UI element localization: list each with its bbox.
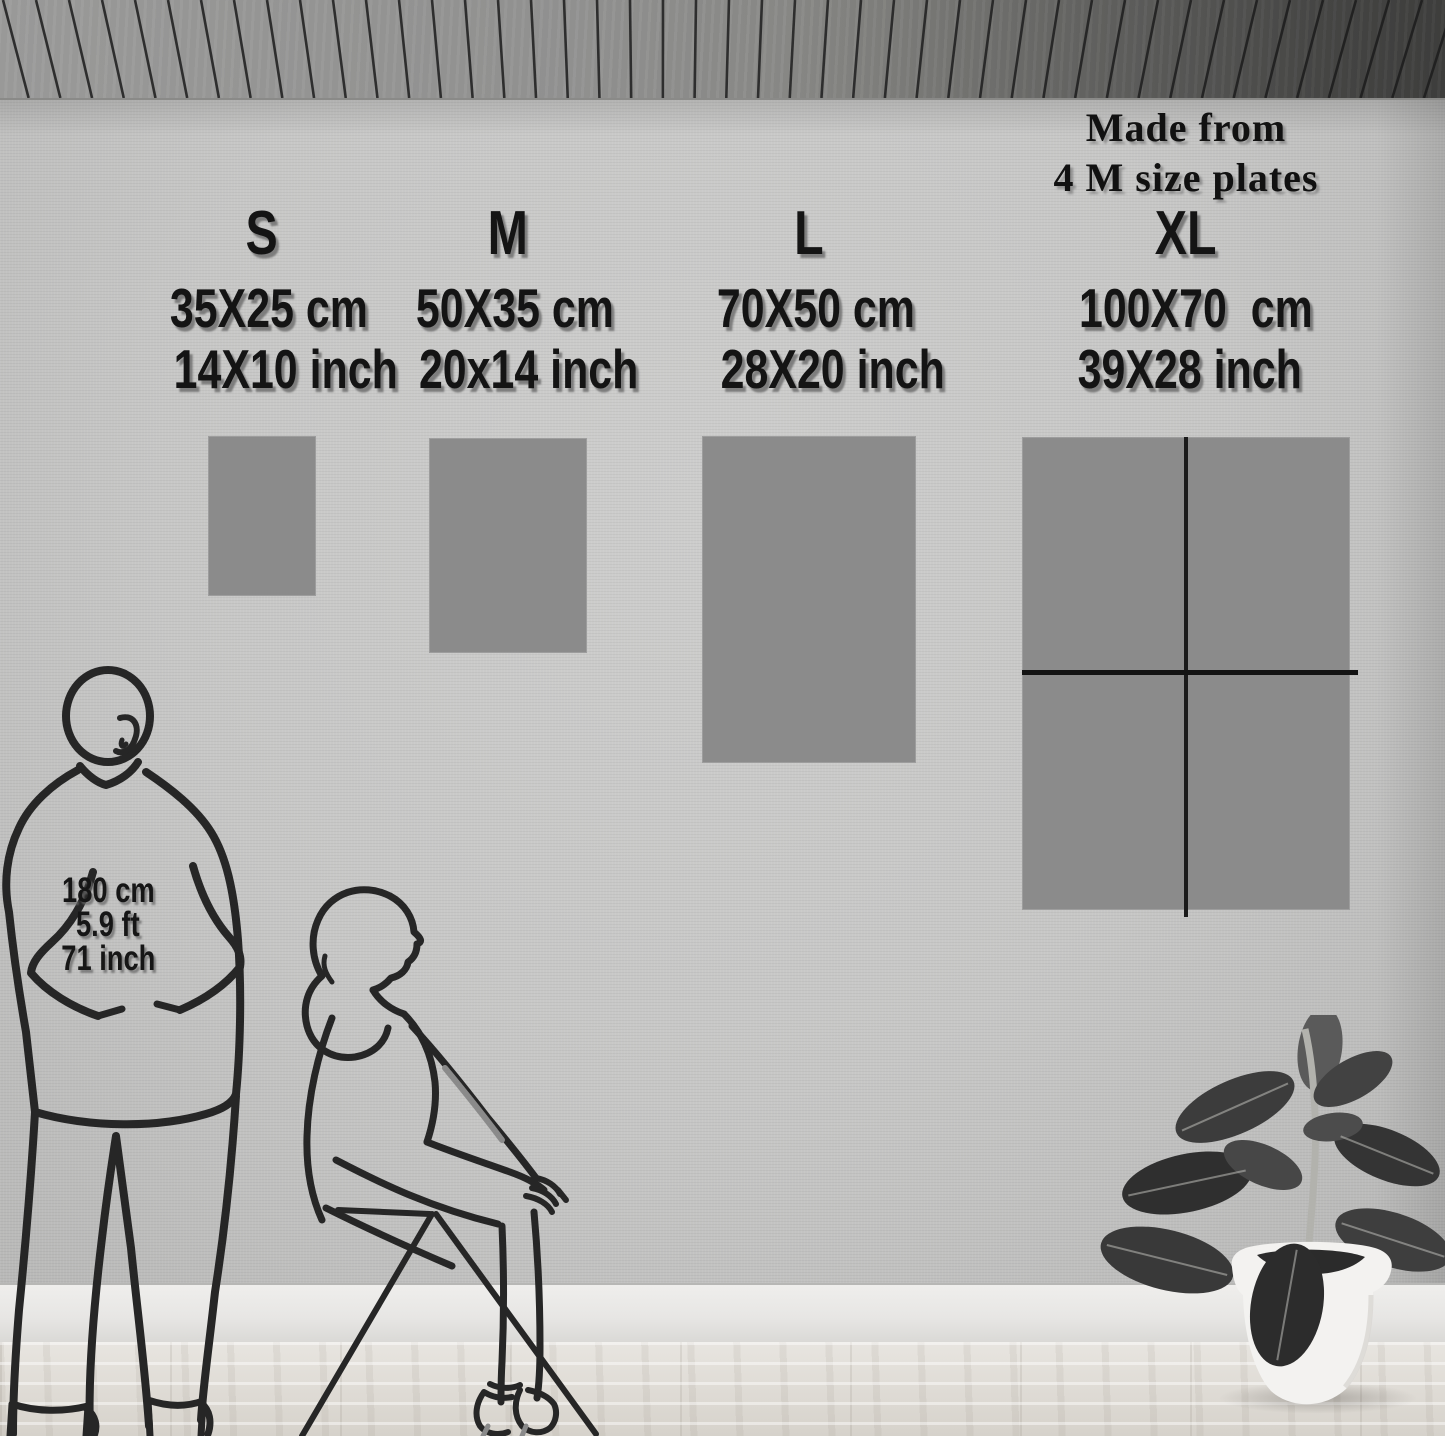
height-ft: 5.9 ft xyxy=(76,908,140,942)
size-guide-infographic: Made from 4 M size plates S 35X25 cm 14X… xyxy=(0,0,1445,1436)
woman-ear xyxy=(324,956,332,982)
man-left-shoe xyxy=(10,1404,96,1436)
woman-shin-near xyxy=(501,1226,504,1402)
woman-face-profile xyxy=(373,896,421,990)
woman-hair xyxy=(305,890,390,1058)
height-inch: 71 inch xyxy=(61,942,155,976)
size-plate-l xyxy=(702,436,916,763)
woman-ankle xyxy=(490,1384,520,1388)
standing-man-figure xyxy=(0,660,300,1436)
man-left-leg-outer xyxy=(13,1112,35,1434)
height-cm: 180 cm xyxy=(62,874,155,908)
size-plate-s xyxy=(208,436,316,596)
size-column-m: M 50X35 cm 20x14 inch xyxy=(388,203,628,397)
man-ear-curl xyxy=(121,740,126,746)
size-label-l: L xyxy=(794,203,824,265)
xl-note-line-1: Made from xyxy=(976,108,1396,148)
xl-plate-vertical-divider xyxy=(1184,437,1188,917)
reference-height-label: 180 cm 5.9 ft 71 inch xyxy=(8,874,208,976)
size-plate-m xyxy=(429,438,587,653)
size-label-m: M xyxy=(488,203,528,265)
xl-plate-horizontal-divider xyxy=(1022,670,1358,675)
size-column-xl: XL 100X70 cm 39X28 inch xyxy=(1046,203,1326,397)
man-head xyxy=(66,670,150,762)
size-inch-xl: 39X28 inch xyxy=(1078,342,1302,397)
man-right-hand xyxy=(157,1004,180,1010)
size-cm-xl: 100X70 cm xyxy=(1079,281,1313,336)
size-cm-m: 50X35 cm xyxy=(416,281,614,336)
ceiling-shadow xyxy=(0,0,1445,98)
size-inch-m: 20x14 inch xyxy=(419,342,638,397)
potted-plant xyxy=(1095,1015,1445,1436)
size-label-xl: XL xyxy=(1155,203,1217,265)
size-cm-l: 70X50 cm xyxy=(717,281,915,336)
woman-heel-shoe-near xyxy=(477,1392,512,1434)
size-column-l: L 70X50 cm 28X20 inch xyxy=(689,203,929,397)
man-legs-inner xyxy=(90,1136,149,1432)
woman-neck-front xyxy=(373,990,404,1014)
man-right-shoe xyxy=(148,1400,210,1436)
size-cm-s: 35X25 cm xyxy=(170,281,368,336)
size-label-s: S xyxy=(246,203,278,265)
size-inch-l: 28X20 inch xyxy=(721,342,945,397)
woman-arm-accent xyxy=(445,1068,502,1140)
size-inch-s: 14X10 inch xyxy=(174,342,398,397)
seated-woman-figure xyxy=(270,878,610,1436)
man-left-hand xyxy=(98,1009,122,1016)
woman-shin-far xyxy=(534,1212,540,1398)
xl-note-line-2: 4 M size plates xyxy=(976,158,1396,198)
man-right-leg-outer xyxy=(201,1096,236,1420)
size-column-s: S 35X25 cm 14X10 inch xyxy=(142,203,382,397)
woman-back xyxy=(307,1018,332,1220)
wood-slat-ceiling xyxy=(0,0,1445,100)
